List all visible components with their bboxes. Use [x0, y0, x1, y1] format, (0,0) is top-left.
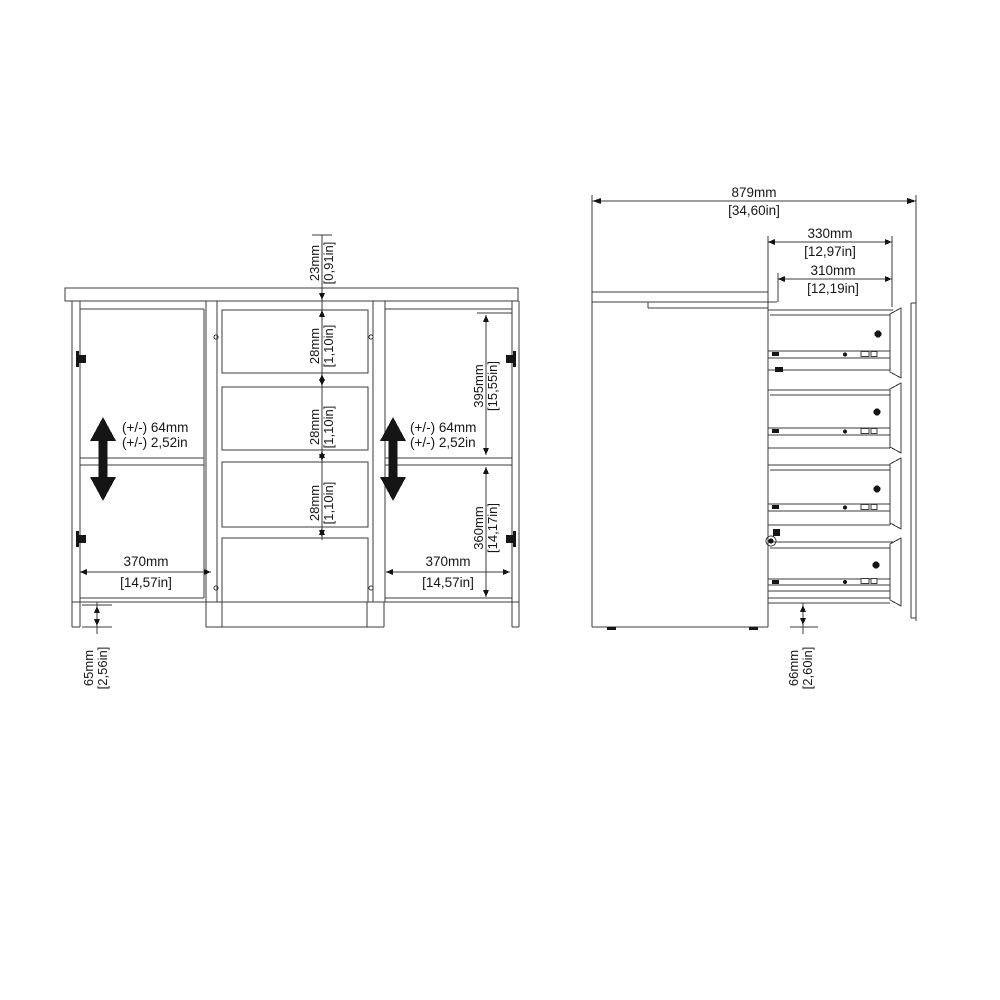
front-plinth-height-dimension: [82, 602, 112, 634]
dim-upper-section-height-in: [15,55in]: [486, 354, 500, 418]
dim-lower-section-height-mm: 360mm: [472, 496, 486, 560]
front-view-top-panel: [65, 288, 518, 301]
side-view-drawer-2: [768, 390, 893, 448]
dim-left-door-width-mm: 370mm: [91, 554, 201, 569]
dim-drawer-inner-depth-mm: 310mm: [778, 263, 888, 278]
dim-drawer-gap-1: 28mm [1,10in]: [308, 314, 336, 378]
dim-drawer-gap-3: 28mm [1,10in]: [308, 471, 336, 535]
shelf-adjust-note-left-in: (+/-) 2,52in: [122, 436, 188, 451]
dim-total-depth-mm: 879mm: [699, 185, 809, 200]
shelf-adjust-note-left: (+/-) 64mm (+/-) 2,52in: [122, 421, 188, 450]
side-view-drawer-3: [768, 465, 893, 525]
dim-right-door-width-mm: 370mm: [393, 554, 503, 569]
dim-front-plinth-height: 65mm [2,56in]: [82, 636, 110, 700]
dim-side-plinth-height-mm: 66mm: [787, 636, 801, 700]
dim-drawer-gap-1-mm: 28mm: [308, 314, 322, 378]
side-view-drawer-4: [768, 542, 893, 603]
dim-drawer-gap-2: 28mm [1,10in]: [308, 395, 336, 459]
dim-drawer-depth-in: [12,97in]: [775, 244, 885, 259]
shelf-adjust-arrow-right-icon: [380, 417, 406, 501]
dim-drawer-gap-1-in: [1,10in]: [322, 314, 336, 378]
side-view-front-edge-strip: [911, 303, 916, 618]
dim-lower-section-height-in: [14,17in]: [486, 496, 500, 560]
dim-front-top-gap-in: [0,91in]: [322, 231, 336, 295]
dim-side-plinth-height: 66mm [2,60in]: [787, 636, 815, 700]
front-view-plinth: [72, 602, 519, 627]
dim-front-top-gap-mm: 23mm: [308, 231, 322, 295]
dim-upper-section-height: 395mm [15,55in]: [472, 354, 500, 418]
dim-front-top-gap: 23mm [0,91in]: [308, 231, 336, 295]
shelf-adjust-note-right-in: (+/-) 2,52in: [410, 436, 476, 451]
dim-lower-section-height: 360mm [14,17in]: [472, 496, 500, 560]
technical-line-drawing: [0, 0, 1000, 1000]
side-view-drawer-front-edges: [890, 308, 901, 606]
dim-drawer-gap-2-mm: 28mm: [308, 395, 322, 459]
side-view-body: [592, 292, 777, 630]
dim-total-depth-in: [34,60in]: [699, 203, 809, 218]
side-view-plinth-height-dimension: [790, 603, 818, 634]
shelf-adjust-arrow-left-icon: [90, 417, 116, 501]
front-view-drawer-fronts: [222, 310, 368, 602]
dim-drawer-inner-depth-in: [12,19in]: [778, 281, 888, 296]
dim-front-plinth-height-mm: 65mm: [82, 636, 96, 700]
dim-drawer-gap-3-mm: 28mm: [308, 471, 322, 535]
shelf-adjust-note-left-mm: (+/-) 64mm: [122, 421, 188, 436]
side-view-drawer-1: [768, 310, 893, 370]
dim-drawer-gap-2-in: [1,10in]: [322, 395, 336, 459]
shelf-adjust-note-right: (+/-) 64mm (+/-) 2,52in: [410, 421, 476, 450]
dim-drawer-gap-3-in: [1,10in]: [322, 471, 336, 535]
dim-upper-section-height-mm: 395mm: [472, 354, 486, 418]
dimension-diagram-canvas: 23mm [0,91in] 28mm [1,10in] 28mm [1,10in…: [0, 0, 1000, 1000]
dim-right-door-width-in: [14,57in]: [393, 575, 503, 590]
dim-left-door-width-in: [14,57in]: [91, 575, 201, 590]
dim-side-plinth-height-in: [2,60in]: [801, 636, 815, 700]
shelf-adjust-note-right-mm: (+/-) 64mm: [410, 421, 476, 436]
side-view-hardware-marks: [766, 367, 783, 546]
dim-front-plinth-height-in: [2,56in]: [96, 636, 110, 700]
dim-drawer-depth-mm: 330mm: [775, 226, 885, 241]
